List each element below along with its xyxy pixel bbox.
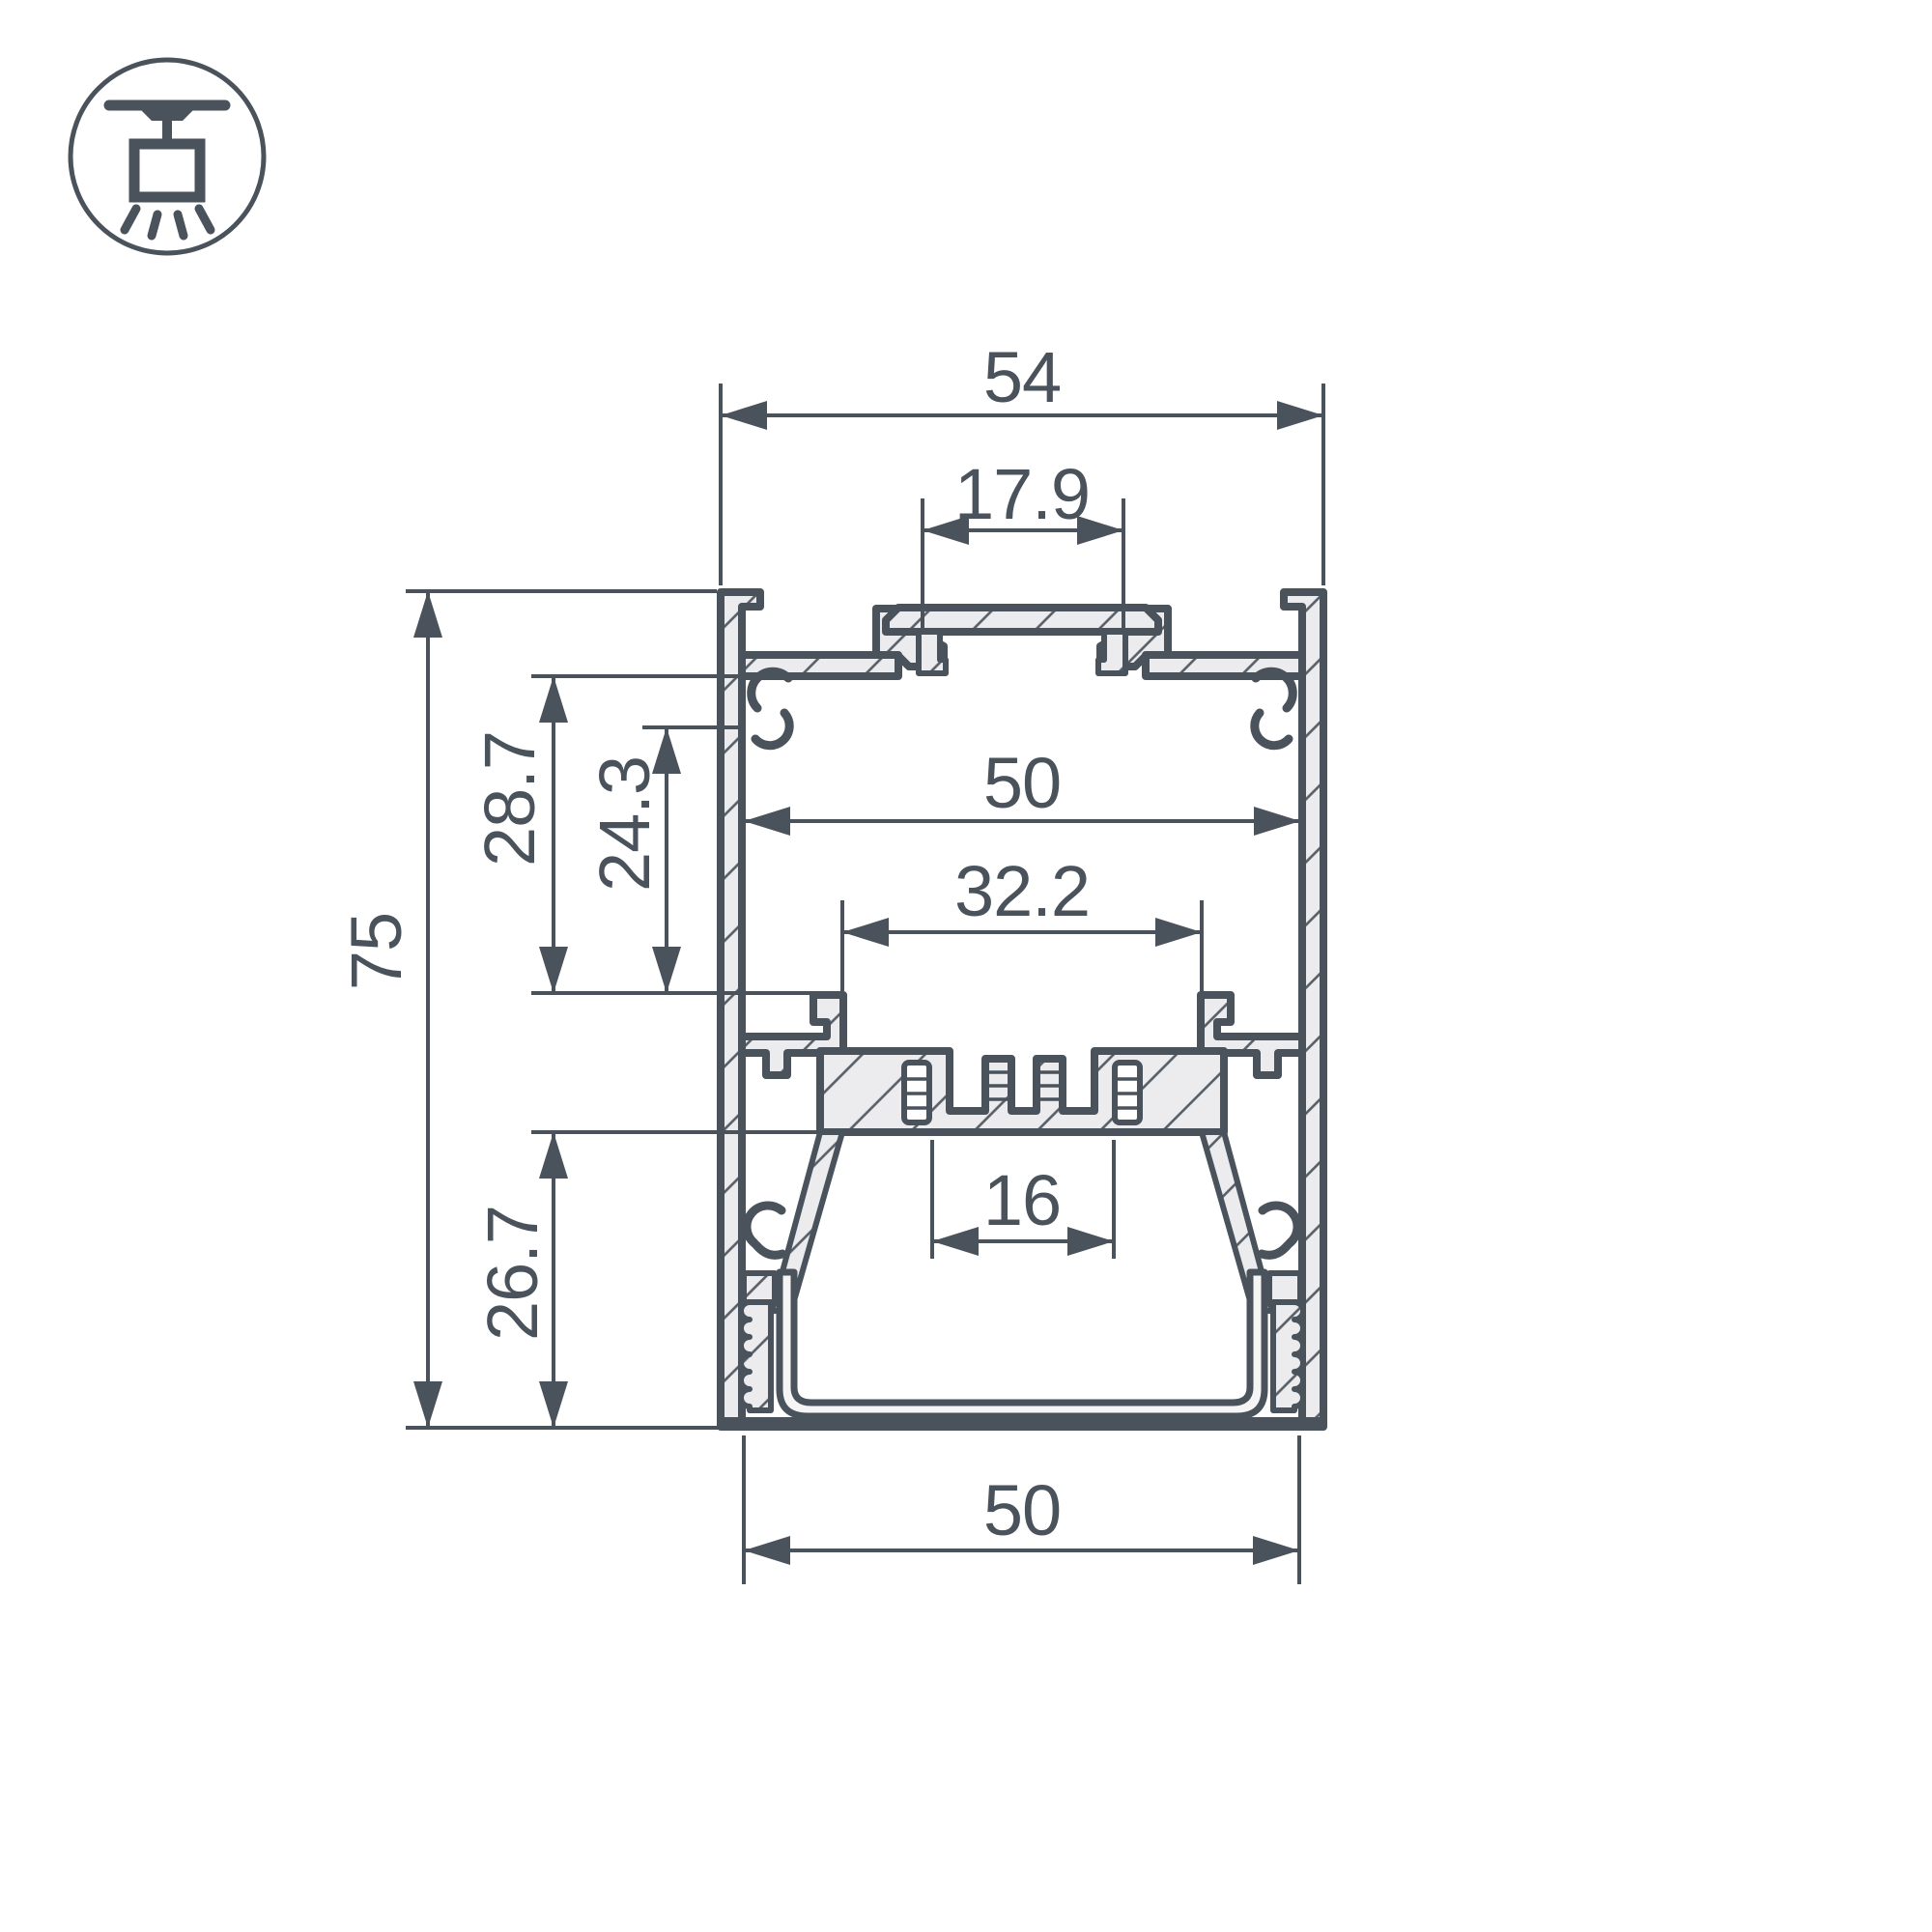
technical-drawing-page: 54 17.9 50 32.2 16 50 75 28.7 24.3 26.7 xyxy=(0,0,1932,1932)
dim-label-inner-width: 50 xyxy=(983,743,1061,823)
clip-strip-right xyxy=(1273,1302,1303,1410)
screw-boss-left xyxy=(752,671,789,745)
bottom-edge xyxy=(721,1417,1323,1431)
barb-hook-right xyxy=(1262,1206,1297,1255)
barb-hook-left xyxy=(747,1206,782,1255)
dim-label-upper-cavity-depth: 28.7 xyxy=(469,731,550,867)
diffuser xyxy=(780,1272,1264,1416)
dim-label-mount-cavity-depth: 24.3 xyxy=(584,756,665,892)
dim-label-heatsink-width: 32.2 xyxy=(954,851,1090,931)
heatsink xyxy=(820,1051,1224,1132)
screw-boss-right xyxy=(1255,671,1293,745)
dim-label-lower-cavity-depth: 26.7 xyxy=(472,1206,553,1341)
clip-block-right xyxy=(1269,1273,1300,1302)
pad-leg-left xyxy=(919,632,946,673)
dim-label-overall-height: 75 xyxy=(336,913,416,990)
profile-section xyxy=(721,592,1323,1431)
dim-label-strip-slot-width: 16 xyxy=(983,1160,1061,1240)
mounting-pad xyxy=(886,608,1158,632)
light-rays-icon-part xyxy=(125,209,211,236)
dim-label-outer-width: 54 xyxy=(983,337,1061,417)
profile-drawing: 54 17.9 50 32.2 16 50 75 28.7 24.3 26.7 xyxy=(0,0,1932,1932)
dim-label-bottom-inner-width: 50 xyxy=(983,1470,1061,1550)
clip-strip-left xyxy=(741,1302,771,1410)
dimension-arrows xyxy=(413,401,1323,1565)
ceiling-pendant-mount-icon xyxy=(71,60,264,253)
dim-label-mount-slot-width: 17.9 xyxy=(954,454,1090,534)
clip-block-left xyxy=(744,1273,775,1302)
pad-leg-right xyxy=(1098,632,1125,673)
